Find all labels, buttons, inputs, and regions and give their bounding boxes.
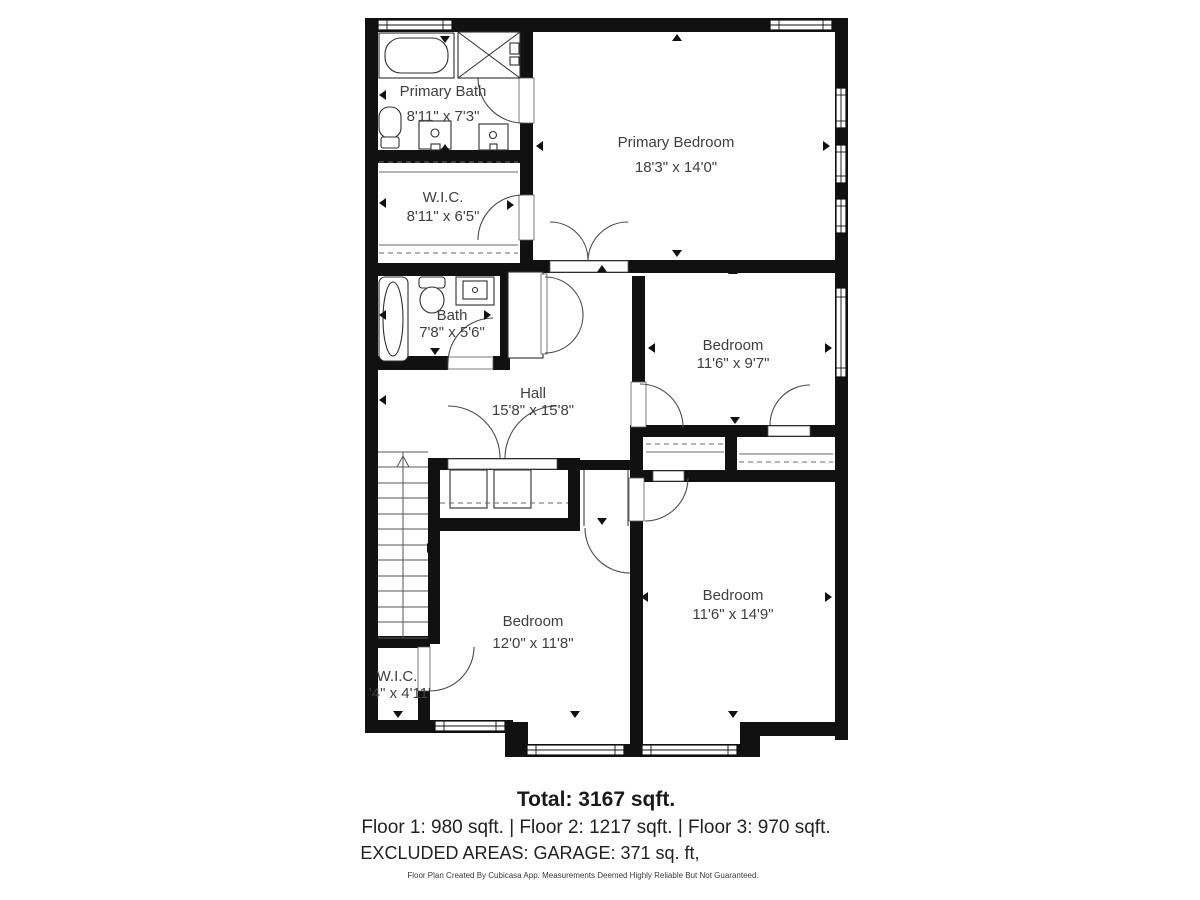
room-label: Bedroom bbox=[703, 337, 764, 354]
room-dims: 12'0" x 11'8" bbox=[492, 635, 573, 652]
door-arc bbox=[545, 277, 583, 315]
room-label: W.I.C. bbox=[423, 189, 464, 206]
total-area-text: Total: 3167 sqft. bbox=[517, 788, 675, 812]
sink-icon bbox=[419, 121, 451, 150]
window bbox=[642, 745, 737, 755]
floor-plan-page: Primary Bath 8'11" x 7'3" W.I.C. 8'11" x… bbox=[0, 0, 1200, 900]
room-label: Hall bbox=[520, 385, 546, 402]
window bbox=[836, 288, 846, 377]
dryer-icon bbox=[494, 470, 531, 508]
window bbox=[836, 88, 846, 128]
room-dims: 15'8" x 15'8" bbox=[492, 402, 574, 419]
room-dims: 7'8" x 5'6" bbox=[419, 324, 485, 341]
window bbox=[527, 745, 624, 755]
room-dims: 3'4" x 4'11" bbox=[361, 685, 434, 702]
stairs-icon bbox=[378, 452, 428, 638]
landing-closet bbox=[508, 272, 543, 358]
window bbox=[836, 199, 846, 233]
toilet-icon bbox=[379, 107, 401, 148]
shower-icon bbox=[458, 32, 520, 78]
door-arc bbox=[640, 384, 683, 427]
door-arc bbox=[770, 385, 810, 425]
room-dims: 8'11" x 7'3" bbox=[407, 108, 480, 125]
window bbox=[378, 20, 452, 30]
window bbox=[770, 20, 832, 30]
floor-areas-text: Floor 1: 980 sqft. | Floor 2: 1217 sqft.… bbox=[361, 817, 830, 839]
washer-icon bbox=[450, 470, 487, 508]
room-labels: Primary Bath 8'11" x 7'3" W.I.C. 8'11" x… bbox=[361, 83, 774, 702]
door-arc bbox=[430, 647, 474, 691]
window bbox=[836, 145, 846, 183]
sink-icon bbox=[479, 124, 508, 150]
floorplan-drawing: Primary Bath 8'11" x 7'3" W.I.C. 8'11" x… bbox=[0, 0, 1200, 900]
room-label: Primary Bath bbox=[400, 83, 487, 100]
room-dims: 18'3" x 14'0" bbox=[635, 159, 717, 176]
room-label: W.I.C. bbox=[377, 668, 418, 685]
excluded-areas-text: EXCLUDED AREAS: GARAGE: 371 sq. ft, bbox=[360, 843, 699, 864]
door-arc bbox=[550, 222, 588, 260]
room-dims: 11'6" x 14'9" bbox=[692, 606, 773, 623]
room-dims: 11'6" x 9'7" bbox=[697, 355, 770, 372]
door-arc bbox=[545, 315, 583, 353]
room-label: Bedroom bbox=[503, 613, 564, 630]
sink-icon bbox=[456, 277, 494, 305]
door-arc bbox=[588, 222, 628, 260]
door-arc bbox=[585, 528, 630, 573]
door-arc bbox=[645, 478, 688, 521]
room-label: Bath bbox=[437, 307, 468, 324]
disclaimer-text: Floor Plan Created By Cubicasa App. Meas… bbox=[407, 871, 758, 880]
door-arc bbox=[478, 195, 523, 240]
window bbox=[435, 721, 505, 731]
room-label: Bedroom bbox=[703, 587, 764, 604]
room-label: Primary Bedroom bbox=[618, 134, 735, 151]
bathtub-icon bbox=[379, 277, 408, 361]
room-dims: 8'11" x 6'5" bbox=[407, 208, 480, 225]
